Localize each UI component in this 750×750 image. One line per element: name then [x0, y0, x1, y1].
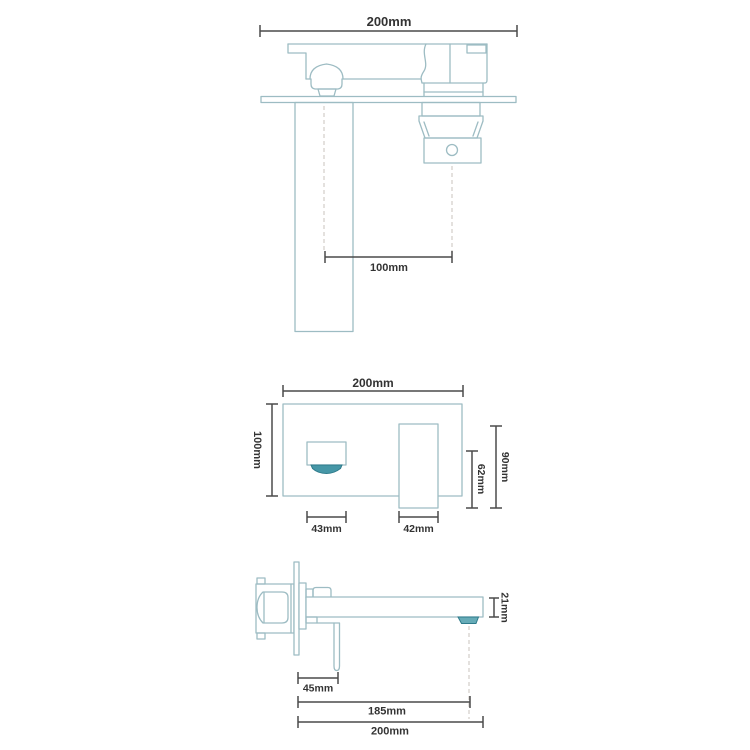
body-left-step [288, 44, 306, 79]
escutcheon-side [299, 583, 306, 629]
handle-lever-side [334, 623, 340, 671]
spout-nozzle-base [318, 89, 336, 96]
wall-plate-plan [261, 97, 516, 103]
lever-tip-notch [467, 45, 486, 53]
spout-side [306, 588, 483, 671]
side-view: 21mm 45mm 185mm 200mm [256, 562, 511, 738]
handle-pivot-bump [313, 588, 331, 598]
dim-front-spout-width: 43mm [307, 511, 346, 535]
dim-side-spout-reach: 185mm [298, 696, 470, 718]
dim-label: 62mm [475, 464, 487, 494]
dim-label: 200mm [352, 376, 393, 390]
dim-plan-overall-width: 200mm [260, 14, 517, 37]
faucet-body-plan [288, 44, 487, 96]
dim-side-overall-reach: 200mm [298, 716, 483, 738]
faucet-technical-drawing: 200mm [0, 0, 750, 750]
housing-base [424, 138, 481, 163]
mixer-dome [310, 64, 343, 79]
collar-slant [424, 122, 429, 136]
dim-label: 43mm [311, 523, 341, 535]
dim-front-plate-width: 200mm [283, 376, 463, 397]
valve-bottom-tab [257, 633, 265, 639]
spout-nozzle-cup [311, 79, 342, 89]
valve-housing-plan [419, 103, 483, 254]
dim-label: 200mm [371, 726, 409, 738]
valve-top-tab [257, 578, 265, 584]
dim-label: 185mm [368, 706, 406, 718]
dim-label: 42mm [403, 523, 433, 535]
dim-label: 21mm [499, 592, 511, 622]
spout-outlet-side [458, 617, 479, 624]
dim-front-plate-height: 100mm [251, 404, 278, 496]
dim-label: 100mm [370, 262, 408, 274]
spout-bar [306, 597, 483, 617]
plan-view: 200mm [260, 14, 517, 332]
dim-label: 90mm [499, 452, 511, 482]
dim-side-handle-offset: 45mm [298, 672, 338, 695]
handle-face-curve [421, 44, 426, 83]
dim-plan-spout-to-valve: 100mm [325, 251, 452, 274]
front-view: 200mm 100mm 62mm 90 [251, 376, 511, 535]
dim-label: 200mm [367, 14, 412, 29]
spout-lower-step [306, 617, 317, 623]
valve-body-side [256, 578, 294, 639]
technical-drawing-page: 200mm [0, 0, 750, 750]
dim-side-spout-height: 21mm [489, 592, 511, 622]
dim-front-handle-height: 90mm [490, 426, 511, 508]
cartridge [257, 592, 288, 623]
dim-front-handle-drop: 62mm [466, 451, 487, 508]
screw-hole [447, 145, 458, 156]
housing-neck [422, 103, 480, 117]
dim-label: 45mm [303, 683, 333, 695]
collar-slant [473, 122, 478, 136]
dim-front-handle-width: 42mm [399, 511, 438, 535]
dim-label: 100mm [251, 431, 263, 469]
wall-plate-side [294, 562, 299, 655]
handle-front [399, 424, 438, 508]
